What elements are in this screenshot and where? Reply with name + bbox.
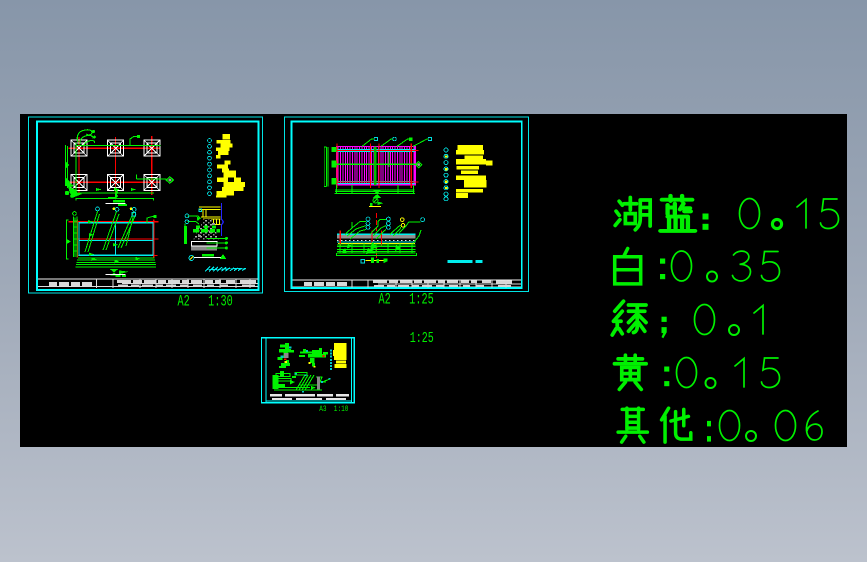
svg-text:1:25: 1:25 — [410, 331, 434, 347]
svg-text:A2 1:25: A2 1:25 — [379, 291, 434, 309]
svg-text:A3 1:10: A3 1:10 — [319, 405, 349, 414]
svg-text:A2 1:30: A2 1:30 — [178, 293, 233, 311]
